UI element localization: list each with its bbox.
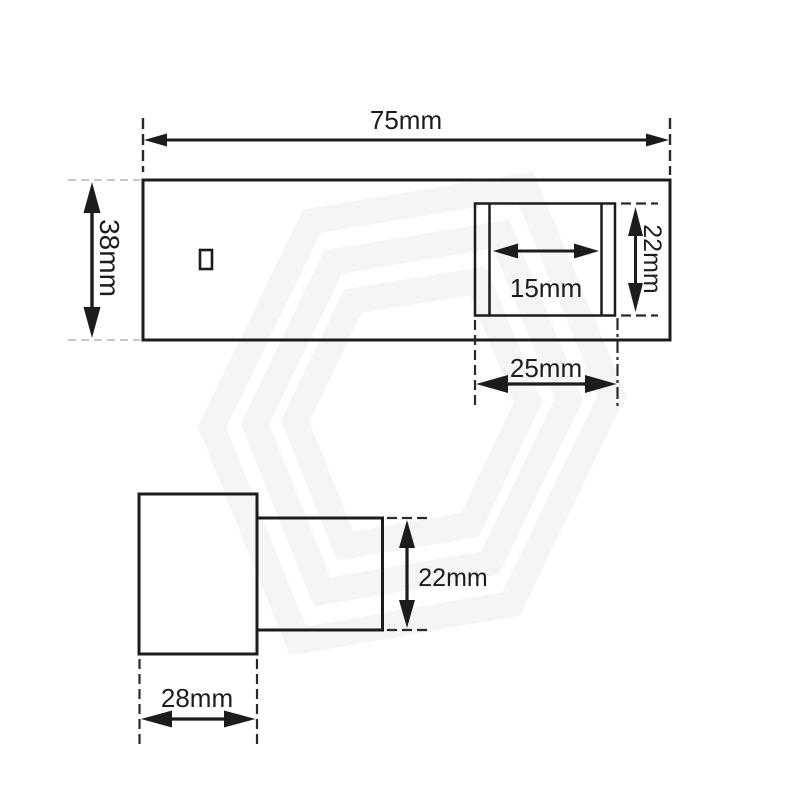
svg-text:75mm: 75mm	[370, 105, 442, 135]
svg-text:22mm: 22mm	[418, 564, 487, 592]
svg-text:28mm: 28mm	[161, 683, 233, 713]
svg-text:38mm: 38mm	[94, 219, 125, 297]
svg-text:25mm: 25mm	[510, 353, 582, 383]
svg-text:22mm: 22mm	[638, 224, 666, 293]
svg-text:15mm: 15mm	[510, 273, 582, 303]
